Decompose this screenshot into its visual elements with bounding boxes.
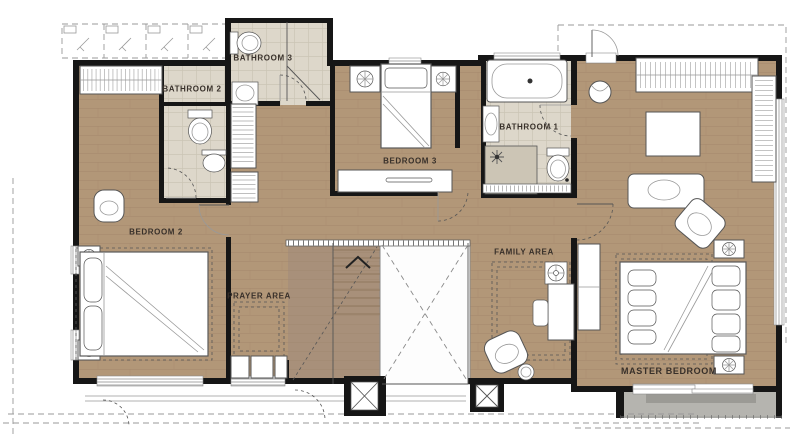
plant-symbol (357, 71, 373, 87)
room-label-bedroom-3: BEDROOM 3 (383, 157, 437, 166)
floor-plan: BEDROOM 2 BATHROOM 2 BATHROOM 3 BEDROOM … (0, 0, 800, 441)
toilet (547, 148, 569, 182)
wardrobe (636, 58, 758, 92)
window (97, 376, 203, 386)
tv-console (338, 170, 452, 192)
dresser (578, 244, 600, 330)
sink (483, 106, 499, 142)
room-label-family-area: FAMILY AREA (494, 248, 554, 257)
toilet (188, 110, 212, 144)
door (586, 30, 618, 63)
cabinet (275, 356, 287, 378)
room-label-bedroom-2: BEDROOM 2 (129, 228, 183, 237)
cabinet (231, 356, 249, 378)
stool (589, 81, 611, 103)
lamp-symbol (723, 243, 736, 256)
armchair (94, 190, 124, 222)
bed (80, 252, 208, 356)
desk (646, 112, 700, 156)
plant-symbol (436, 72, 450, 86)
toilet (230, 32, 261, 54)
wardrobe (80, 66, 162, 94)
sink (202, 150, 226, 172)
balcony-mat (646, 394, 756, 403)
room-label-bathroom-2: BATHROOM 2 (162, 85, 221, 94)
bed (381, 64, 431, 148)
room-label-master-bedroom: MASTER BEDROOM (621, 366, 717, 376)
room-label-bathroom-1: BATHROOM 1 (499, 123, 558, 132)
ceiling-fan-symbol (548, 265, 564, 281)
vanity (483, 184, 571, 193)
room-label-bathroom-3: BATHROOM 3 (233, 54, 292, 63)
ac-units (62, 24, 228, 58)
sink (232, 82, 258, 105)
chair (533, 300, 548, 326)
sliding-door (633, 384, 753, 394)
bathtub (487, 60, 567, 102)
lamp-symbol (723, 359, 736, 372)
cabinet (251, 356, 273, 378)
room-label-prayer-area: PRAYER AREA (227, 292, 291, 301)
bed (620, 262, 746, 354)
hall-closet (231, 104, 258, 202)
side-table (518, 364, 534, 380)
desk (548, 284, 574, 340)
shelf-unit (752, 76, 776, 182)
